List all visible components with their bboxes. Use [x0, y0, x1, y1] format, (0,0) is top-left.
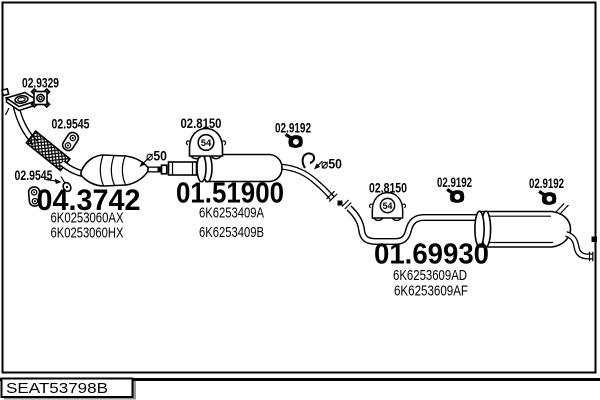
gasket-ref-label: 02.9329 [22, 76, 59, 91]
centre-silencer-oem-code-1: 6K6253409A [199, 205, 264, 222]
catalyst-oem-code-2: 6K0253060HX [51, 225, 124, 242]
joint-square [338, 201, 343, 206]
drawing-ref-label: SEAT53798B [6, 381, 108, 397]
exhaust-diagram-page: SEAT53798B [0, 0, 600, 400]
mount-size-label-front: 54 [201, 138, 212, 149]
mount-ref-label-rear: 02.8150 [369, 181, 407, 196]
exhaust-diagram-canvas: SEAT53798B [0, 0, 600, 400]
catalyst-body [81, 155, 148, 186]
clamp-ref-label-1: 02.9192 [275, 121, 311, 136]
pipe-diameter-label-2: ⌀50 [321, 157, 342, 172]
clamp-ref-label-3: 02.9192 [529, 176, 564, 191]
front-hanger-ref-label-2: 02.9545 [15, 168, 53, 183]
centre-silencer-oem-code-2: 6K6253409B [199, 224, 264, 241]
rear-silencer-oem-code-2: 6K6253609AF [394, 283, 468, 300]
pipe-diameter-label-1: ⌀50 [146, 149, 167, 164]
clamp-ref-label-2: 02.9192 [437, 175, 472, 190]
mount-size-label-rear: 54 [383, 201, 393, 211]
flange-bolt-tab [2, 89, 9, 96]
flange-gasket-icon [31, 89, 49, 107]
front-hanger-ref-label-1: 02.9545 [52, 117, 90, 132]
tailpipe-end-marker [592, 237, 598, 243]
rear-silencer-oem-code-1: 6K6253609AD [393, 267, 467, 284]
mount-ref-label-front: 02.8150 [181, 116, 222, 131]
rear-silencer-part-number: 01.69930 [374, 239, 489, 271]
